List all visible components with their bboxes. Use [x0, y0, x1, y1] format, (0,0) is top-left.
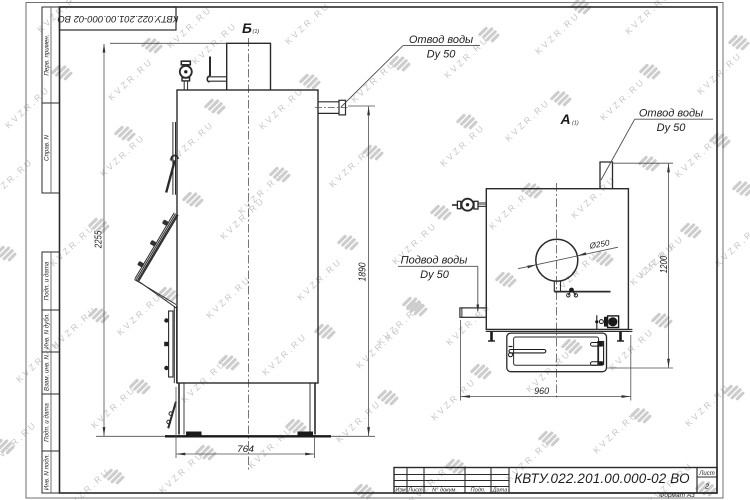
- svg-text:Формат А3: Формат А3: [659, 492, 695, 499]
- svg-text:Подп. и дата: Подп. и дата: [43, 261, 50, 300]
- svg-text:Dy 50: Dy 50: [427, 49, 457, 61]
- svg-text:КВТУ.022.201.00.000-02 ВО: КВТУ.022.201.00.000-02 ВО: [57, 13, 179, 24]
- svg-text:Инв. N подл.: Инв. N подл.: [43, 454, 50, 490]
- svg-text:1200: 1200: [659, 255, 670, 273]
- svg-text:Взам. инв. N: Взам. инв. N: [43, 354, 50, 391]
- svg-text:Подп. и дата: Подп. и дата: [43, 403, 50, 442]
- svg-text:N° докум.: N° докум.: [432, 488, 457, 494]
- svg-text:А: А: [560, 111, 571, 127]
- svg-text:Лист: Лист: [407, 488, 423, 494]
- svg-text:Лист: Лист: [698, 471, 714, 477]
- svg-text:Дата: Дата: [492, 488, 508, 494]
- svg-text:2255: 2255: [94, 230, 105, 249]
- svg-text:Справ. N: Справ. N: [43, 135, 50, 161]
- svg-text:Подп.: Подп.: [471, 488, 486, 494]
- svg-text:960: 960: [534, 386, 550, 397]
- svg-text:1890: 1890: [357, 262, 368, 281]
- svg-text:Б: Б: [242, 20, 252, 36]
- svg-text:КВТУ.022.201.00.000-02 ВО: КВТУ.022.201.00.000-02 ВО: [514, 471, 690, 486]
- svg-text:Отвод воды: Отвод воды: [639, 108, 703, 120]
- svg-text:Подвод воды: Подвод воды: [401, 255, 468, 267]
- svg-text:Инв. N дубл.: Инв. N дубл.: [43, 313, 50, 349]
- svg-text:2: 2: [704, 482, 710, 491]
- svg-text:Dy 50: Dy 50: [420, 269, 450, 281]
- svg-text:Dy 50: Dy 50: [657, 122, 687, 134]
- svg-text:764: 764: [237, 444, 254, 455]
- svg-text:Изм: Изм: [395, 488, 406, 494]
- svg-text:Перв. примен.: Перв. примен.: [43, 34, 50, 75]
- svg-text:Отвод воды: Отвод воды: [409, 34, 473, 46]
- svg-text:(1): (1): [253, 29, 260, 35]
- svg-text:(1): (1): [572, 121, 579, 127]
